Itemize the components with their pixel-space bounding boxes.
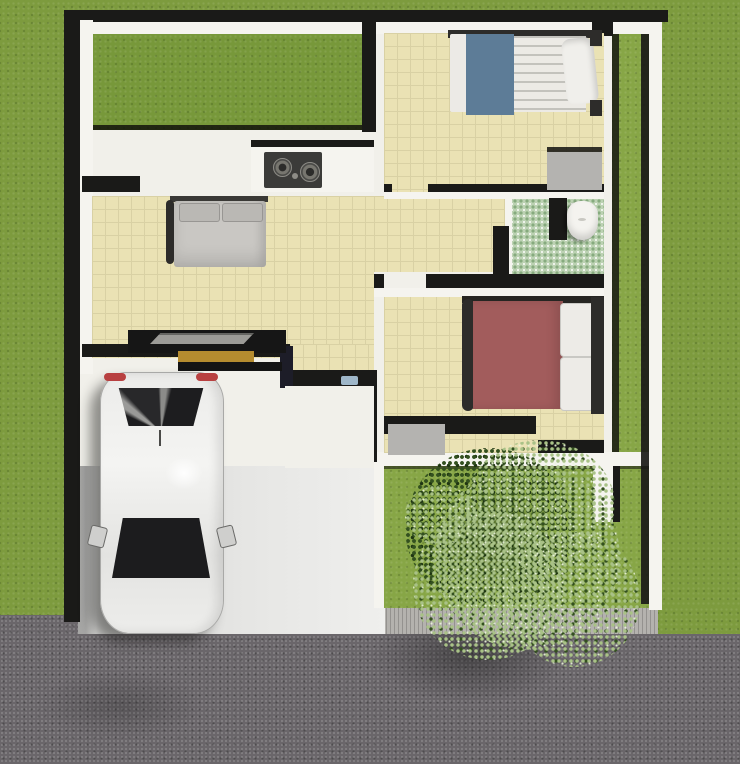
burner-icon bbox=[300, 162, 320, 182]
bed-frame bbox=[590, 100, 602, 116]
burner-icon bbox=[273, 158, 292, 177]
car-reflection bbox=[158, 450, 210, 496]
cooktop bbox=[264, 152, 322, 188]
hallway-floor bbox=[374, 196, 512, 272]
blue-blanket bbox=[466, 34, 514, 115]
perimeter-wall-right bbox=[649, 20, 662, 610]
tree-canopy bbox=[508, 532, 640, 667]
pillow bbox=[561, 37, 600, 106]
grass-patch bbox=[658, 606, 740, 634]
left-wall-shadow bbox=[64, 10, 80, 622]
doormat bbox=[341, 376, 358, 385]
single-bed bbox=[448, 30, 602, 116]
parked-car bbox=[100, 372, 222, 632]
pillow bbox=[179, 203, 220, 222]
courtyard-garden bbox=[92, 33, 374, 130]
wall bbox=[285, 370, 377, 387]
garden-tree bbox=[405, 440, 645, 675]
pillow bbox=[222, 203, 263, 222]
shower-partition bbox=[549, 198, 567, 240]
wall bbox=[82, 176, 140, 192]
hall-floor bbox=[290, 344, 374, 372]
pillow bbox=[560, 357, 594, 411]
floorplan-render bbox=[0, 0, 740, 764]
maroon-double-bed bbox=[462, 296, 604, 416]
wall bbox=[362, 22, 376, 132]
bed-frame bbox=[590, 30, 602, 46]
taillight-icon bbox=[104, 373, 126, 381]
maroon-blanket bbox=[473, 301, 563, 409]
bench-shadow bbox=[178, 362, 282, 371]
pillow bbox=[560, 303, 594, 357]
gray-double-bed bbox=[166, 196, 270, 270]
bed-frame bbox=[591, 297, 604, 414]
car-antenna bbox=[159, 430, 161, 446]
bed-frame bbox=[166, 200, 174, 264]
yard-west-wall bbox=[374, 452, 384, 608]
car-windshield bbox=[112, 518, 210, 578]
toilet bbox=[567, 201, 598, 240]
tray bbox=[150, 333, 254, 344]
car-rear-window bbox=[116, 388, 206, 426]
entry-porch bbox=[285, 386, 374, 468]
stove-knob bbox=[292, 173, 298, 179]
taillight-icon bbox=[196, 373, 218, 381]
wall bbox=[384, 192, 604, 199]
gray-rug bbox=[547, 152, 602, 190]
top-wall-shadow bbox=[64, 10, 668, 22]
tree-canopy bbox=[405, 485, 475, 545]
